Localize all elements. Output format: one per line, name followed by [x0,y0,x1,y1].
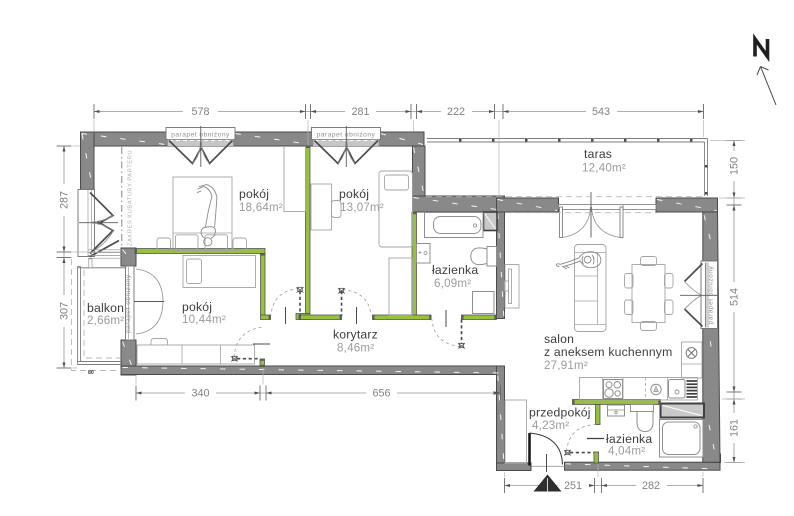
svg-text:ZAKRES KUBATURY PARTERU: ZAKRES KUBATURY PARTERU [128,150,134,246]
svg-text:z aneksem kuchennym: z aneksem kuchennym [544,345,672,359]
svg-text:przedpokój: przedpokój [529,406,591,420]
svg-text:18,64m²: 18,64m² [239,201,283,214]
svg-text:514: 514 [729,288,741,306]
svg-text:281: 281 [351,106,369,118]
svg-text:578: 578 [191,106,209,118]
svg-text:balkon: balkon [87,301,124,315]
svg-text:10,44m²: 10,44m² [182,313,226,326]
svg-text:pokój: pokój [339,187,369,201]
svg-text:282: 282 [642,480,660,492]
svg-text:13,07m²: 13,07m² [340,201,384,214]
svg-text:251: 251 [564,480,582,492]
svg-text:222: 222 [447,106,465,118]
svg-text:80: 80 [88,370,94,376]
svg-text:27,91m²: 27,91m² [544,359,588,372]
svg-text:543: 543 [592,106,610,118]
svg-text:8,46m²: 8,46m² [337,342,374,355]
svg-text:łazienka: łazienka [432,263,478,277]
svg-text:6,09m²: 6,09m² [434,277,471,290]
svg-text:2,66m²: 2,66m² [87,314,124,327]
svg-text:307: 307 [59,302,71,320]
svg-text:korytarz: korytarz [333,328,378,342]
svg-text:taras: taras [584,147,612,161]
svg-text:656: 656 [372,388,390,400]
svg-text:pokój: pokój [182,300,212,314]
svg-text:12,40m²: 12,40m² [582,162,626,175]
svg-text:150: 150 [729,157,741,175]
svg-text:287: 287 [59,191,71,209]
svg-text:pokój: pokój [239,187,269,201]
svg-text:parapet obniżony: parapet obniżony [125,274,132,333]
svg-text:salon: salon [544,332,574,346]
svg-text:4,04m²: 4,04m² [608,445,645,458]
svg-text:340: 340 [191,388,209,400]
svg-text:161: 161 [729,419,741,437]
svg-text:4,23m²: 4,23m² [532,419,569,432]
